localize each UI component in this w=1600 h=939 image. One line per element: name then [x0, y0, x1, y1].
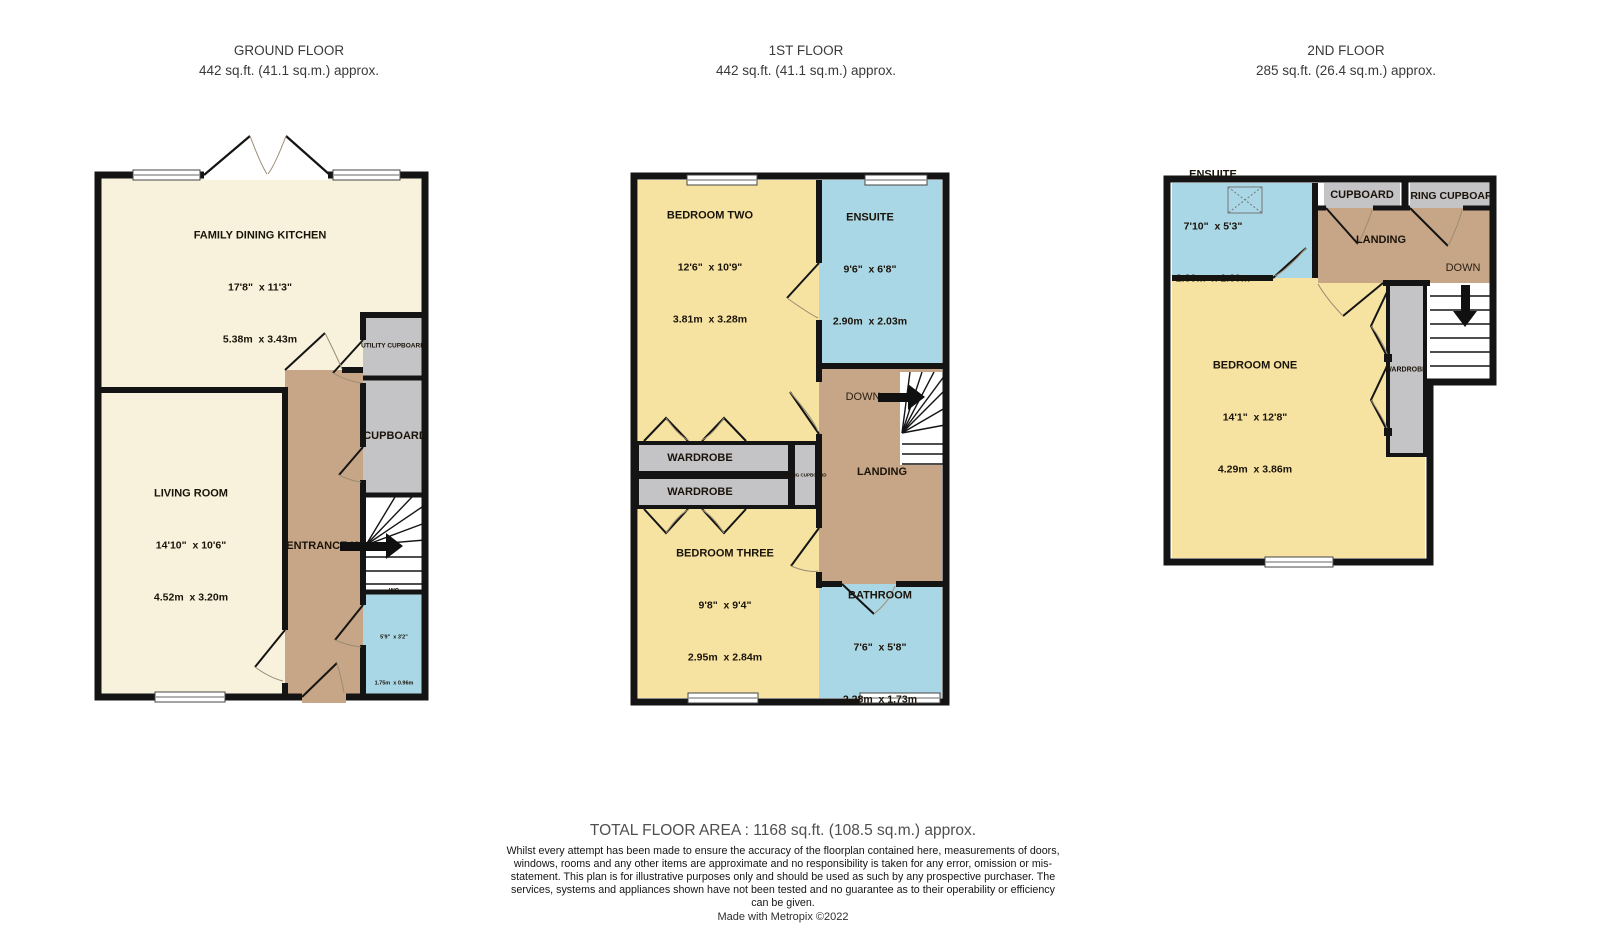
living-room-label: LIVING ROOM 14'10" x 10'6" 4.52m x 3.20m	[154, 448, 228, 643]
first-airing-cupboard-label: AIRING CUPBOARD	[783, 473, 826, 478]
second-floor-area: 285 sq.ft. (26.4 sq.m.) approx.	[1186, 61, 1506, 81]
first-ensuite-name: ENSUITE	[833, 211, 907, 224]
bathroom-dims-metric: 2.28m x 1.73m	[843, 694, 917, 707]
first-down-arrow-icon	[878, 393, 908, 402]
bedroom-three-dims-metric: 2.95m x 2.84m	[676, 652, 774, 665]
first-floor-area: 442 sq.ft. (41.1 sq.m.) approx.	[646, 61, 966, 81]
second-down-label: DOWN	[1446, 262, 1481, 274]
bedroom-one-dims-metric: 4.29m x 3.86m	[1213, 464, 1297, 477]
wc-name: WC	[375, 589, 414, 596]
bedroom-two-label: BEDROOM TWO 12'6" x 10'9" 3.81m x 3.28m	[667, 170, 753, 365]
second-ensuite-dims-imperial: 7'10" x 5'3"	[1176, 221, 1250, 234]
ground-floor-area: 442 sq.ft. (41.1 sq.m.) approx.	[129, 61, 449, 81]
ground-floor-title: GROUND FLOOR	[129, 41, 449, 61]
bedroom-two-dims-imperial: 12'6" x 10'9"	[667, 262, 753, 275]
first-landing-label: LANDING	[857, 466, 907, 478]
first-floor-header: 1ST FLOOR 442 sq.ft. (41.1 sq.m.) approx…	[646, 41, 966, 80]
first-floor-plan: BEDROOM TWO 12'6" x 10'9" 3.81m x 3.28m …	[612, 168, 955, 710]
bedroom-three-name: BEDROOM THREE	[676, 547, 774, 560]
kitchen-label: FAMILY DINING KITCHEN 17'8" x 11'3" 5.38…	[194, 190, 327, 385]
wc-dims-imperial: 5'9" x 3'2"	[375, 635, 414, 642]
second-landing-label: LANDING	[1356, 234, 1406, 246]
second-ensuite-dims-metric: 2.39m x 1.60m	[1176, 273, 1250, 286]
first-ensuite-dims-metric: 2.90m x 2.03m	[833, 316, 907, 329]
french-doors	[204, 136, 330, 180]
metropix-credit: Made with Metropix ©2022	[483, 911, 1083, 923]
footer: TOTAL FLOOR AREA : 1168 sq.ft. (108.5 sq…	[483, 822, 1083, 923]
second-floor-title: 2ND FLOOR	[1186, 41, 1506, 61]
bedroom-two-name: BEDROOM TWO	[667, 209, 753, 222]
total-floor-area: TOTAL FLOOR AREA : 1168 sq.ft. (108.5 sq…	[483, 822, 1083, 840]
bedroom-three-dims-imperial: 9'8" x 9'4"	[676, 600, 774, 613]
first-down-label: DOWN	[846, 391, 881, 403]
bedroom-three-label: BEDROOM THREE 9'8" x 9'4" 2.95m x 2.84m	[676, 508, 774, 703]
first-ensuite-dims-imperial: 9'6" x 6'8"	[833, 264, 907, 277]
disclaimer-text: Whilst every attempt has been made to en…	[503, 845, 1063, 910]
kitchen-name: FAMILY DINING KITCHEN	[194, 229, 327, 242]
bedroom-one-dims-imperial: 14'1" x 12'8"	[1213, 412, 1297, 425]
bedroom-one-name: BEDROOM ONE	[1213, 359, 1297, 372]
ground-floor-header: GROUND FLOOR 442 sq.ft. (41.1 sq.m.) app…	[129, 41, 449, 80]
first-floor-title: 1ST FLOOR	[646, 41, 966, 61]
second-cupboard-label: CUPBOARD	[1330, 189, 1394, 201]
living-room-dims-imperial: 14'10" x 10'6"	[154, 540, 228, 553]
second-airing-cupboard-box: AIRING CUPBOARD	[1410, 183, 1490, 208]
second-ensuite-name: ENSUITE	[1176, 168, 1250, 181]
ground-floor-plan: FAMILY DINING KITCHEN 17'8" x 11'3" 5.38…	[90, 125, 435, 710]
entrance-door-gap	[302, 691, 346, 703]
first-ensuite-label: ENSUITE 9'6" x 6'8" 2.90m x 2.03m	[833, 172, 907, 367]
wardrobe-one-label: WARDROBE	[667, 452, 732, 464]
utility-cupboard-label: UTILITY CUPBOARD	[361, 343, 425, 350]
wc-dims-metric: 1.75m x 0.96m	[375, 681, 414, 688]
entrance-direction-arrow-icon	[340, 542, 386, 551]
second-floor-plan: ENSUITE 7'10" x 5'3" 2.39m x 1.60m CUPBO…	[1158, 168, 1505, 575]
kitchen-dims-imperial: 17'8" x 11'3"	[194, 282, 327, 295]
floorplan-page: { "headers": { "ground": {"title": "GROU…	[0, 0, 1600, 939]
bedroom-one-label: BEDROOM ONE 14'1" x 12'8" 4.29m x 3.86m	[1213, 320, 1297, 515]
second-floor-header: 2ND FLOOR 285 sq.ft. (26.4 sq.m.) approx…	[1186, 41, 1506, 80]
second-windows	[1265, 557, 1333, 567]
living-room-dims-metric: 4.52m x 3.20m	[154, 592, 228, 605]
second-down-arrow-icon	[1461, 285, 1470, 311]
second-ensuite-label: ENSUITE 7'10" x 5'3" 2.39m x 1.60m	[1176, 129, 1250, 324]
second-wardrobe-label: WARDROBE	[1385, 367, 1427, 374]
wardrobe-two-label: WARDROBE	[667, 486, 732, 498]
bathroom-label: BATHROOM 7'6" x 5'8" 2.28m x 1.73m	[843, 550, 917, 745]
kitchen-dims-metric: 5.38m x 3.43m	[194, 334, 327, 347]
bedroom-two-dims-metric: 3.81m x 3.28m	[667, 314, 753, 327]
second-airing-cupboard-label: AIRING CUPBOARD	[1410, 190, 1490, 202]
living-room-name: LIVING ROOM	[154, 487, 228, 500]
bathroom-name: BATHROOM	[843, 589, 917, 602]
bathroom-dims-imperial: 7'6" x 5'8"	[843, 642, 917, 655]
cupboard-label: CUPBOARD	[363, 430, 427, 442]
wc-label: WC 5'9" x 3'2" 1.75m x 0.96m	[375, 550, 414, 727]
